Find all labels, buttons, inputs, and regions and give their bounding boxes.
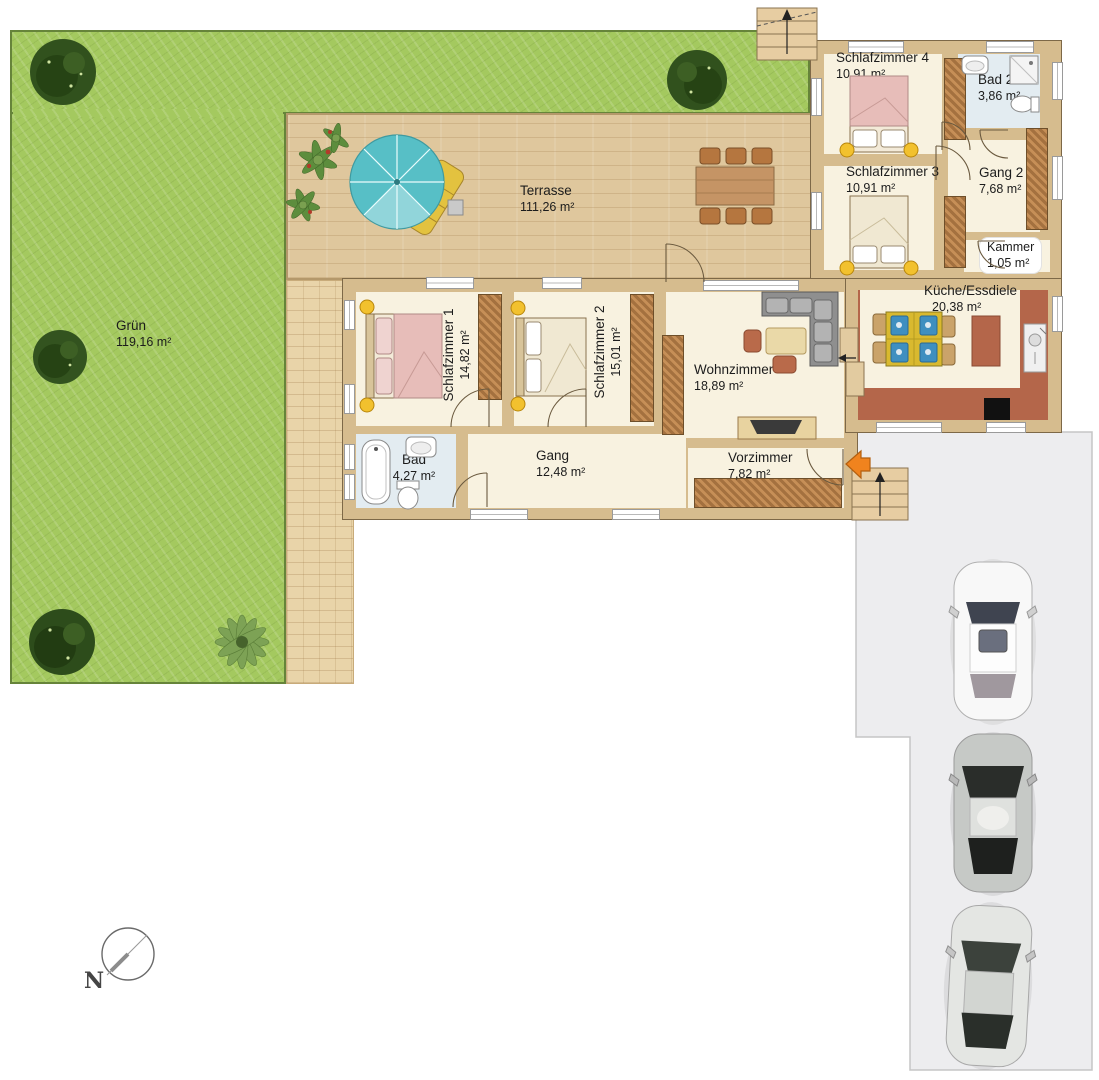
room-name: Kammer: [987, 240, 1034, 256]
label-bad2: Bad 2 3,86 m²: [978, 72, 1020, 105]
window: [1052, 156, 1063, 200]
floor-plan: Grün 119,16 m² Terrasse 111,26 m² Schlaf…: [0, 0, 1099, 1080]
room-name: Schlafzimmer 3: [846, 164, 939, 181]
room-area: 20,38 m²: [924, 300, 1017, 316]
label-schlafzimmer4: Schlafzimmer 4 10,91 m²: [836, 50, 929, 83]
window: [811, 192, 822, 230]
room-area: 3,86 m²: [978, 89, 1020, 105]
wardrobe: [478, 294, 502, 400]
room-name: Vorzimmer: [728, 450, 793, 467]
room-area: 10,91 m²: [836, 67, 929, 83]
room-name: Wohnzimmer: [694, 362, 773, 379]
room-name: Terrasse: [520, 183, 574, 200]
window: [426, 277, 474, 289]
wardrobe: [944, 196, 966, 268]
label-vorzimmer: Vorzimmer 7,82 m²: [728, 450, 793, 483]
room-name: Bad: [385, 452, 443, 469]
room-area: 1,05 m²: [987, 256, 1034, 272]
room-name: Gang: [536, 448, 585, 465]
label-gang2: Gang 2 7,68 m²: [979, 165, 1023, 198]
wardrobe: [662, 335, 684, 435]
window: [1052, 296, 1063, 332]
compass-north-label: N: [84, 968, 104, 994]
window: [470, 509, 528, 520]
room-name: Bad 2: [978, 72, 1020, 89]
room-area: 14,82 m²: [458, 308, 474, 401]
driveway: [856, 432, 1092, 1070]
window: [811, 78, 822, 116]
window: [986, 422, 1026, 433]
window: [542, 277, 582, 289]
window: [344, 384, 355, 414]
label-kammer: Kammer 1,05 m²: [980, 238, 1041, 273]
window: [344, 444, 355, 470]
room-name: Schlafzimmer 4: [836, 50, 929, 67]
window: [703, 280, 799, 291]
wardrobe: [944, 58, 966, 140]
room-area: 111,26 m²: [520, 200, 574, 216]
room-name: Schlafzimmer 2: [592, 305, 609, 398]
window: [876, 422, 942, 433]
room-name: Schlafzimmer 1: [441, 308, 458, 401]
window: [612, 509, 660, 520]
room-area: 119,16 m²: [116, 335, 171, 351]
label-schlafzimmer1: Schlafzimmer 1 14,82 m²: [441, 308, 474, 401]
label-kueche: Küche/Essdiele 20,38 m²: [924, 283, 1017, 316]
wardrobe: [1026, 128, 1048, 230]
window: [1052, 62, 1063, 100]
room-area: 15,01 m²: [609, 305, 625, 398]
room-area: 7,68 m²: [979, 182, 1023, 198]
room-name: Grün: [116, 318, 171, 335]
label-wohnzimmer: Wohnzimmer 18,89 m²: [694, 362, 773, 395]
label-bad: Bad 4,27 m²: [385, 452, 443, 485]
label-schlafzimmer3: Schlafzimmer 3 10,91 m²: [846, 164, 939, 197]
wardrobe-vorzimmer: [694, 478, 842, 508]
window: [344, 474, 355, 500]
label-gang: Gang 12,48 m²: [536, 448, 585, 481]
room-area: 12,48 m²: [536, 465, 585, 481]
room-name: Küche/Essdiele: [924, 283, 1017, 300]
label-terrasse: Terrasse 111,26 m²: [520, 183, 574, 216]
room-area: 10,91 m²: [846, 181, 939, 197]
window: [344, 300, 355, 330]
label-schlafzimmer2: Schlafzimmer 2 15,01 m²: [592, 305, 625, 398]
label-gruen: Grün 119,16 m²: [116, 318, 171, 351]
room-name: Gang 2: [979, 165, 1023, 182]
room-area: 7,82 m²: [728, 467, 793, 483]
room-area: 4,27 m²: [385, 469, 443, 485]
wardrobe: [630, 294, 654, 422]
room-area: 18,89 m²: [694, 379, 773, 395]
window: [986, 41, 1034, 53]
